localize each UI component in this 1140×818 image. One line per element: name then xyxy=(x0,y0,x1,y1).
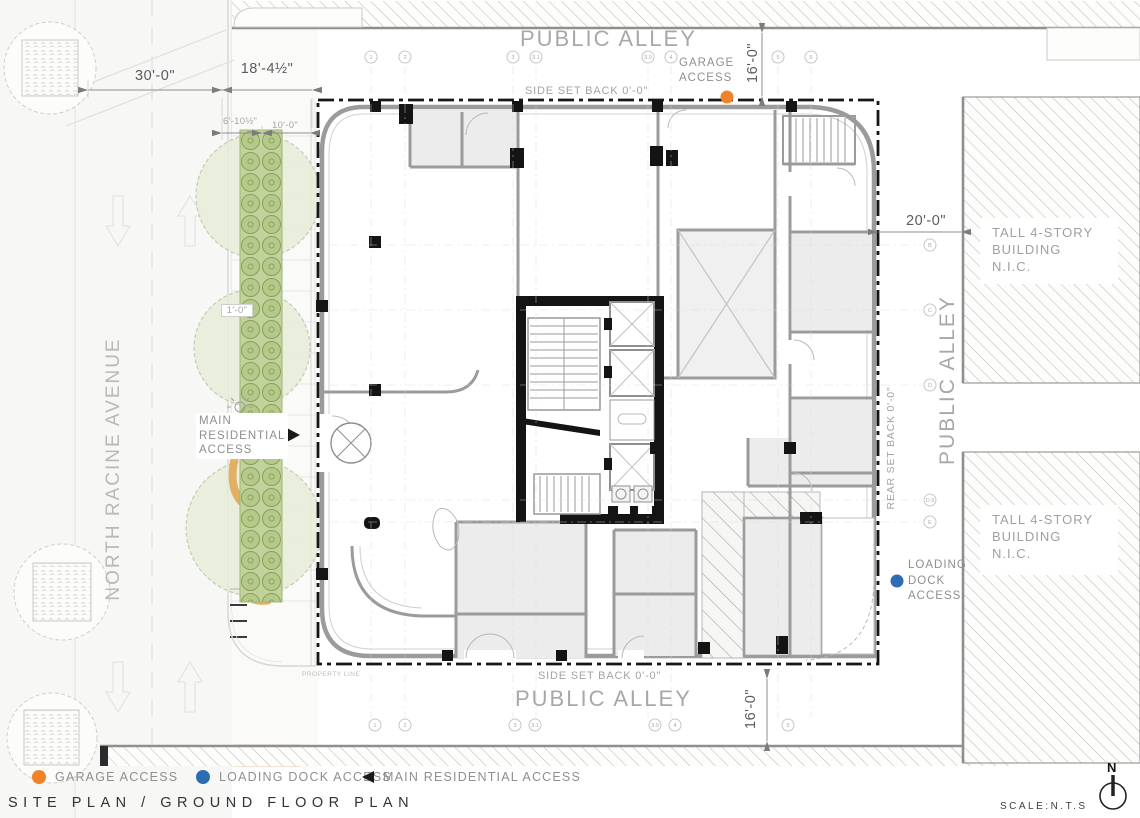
svg-text:D: D xyxy=(928,383,932,389)
north-label: N xyxy=(1107,760,1116,775)
grid-bubble: 4 xyxy=(665,51,677,63)
property-line-label: PROPERTY LINE xyxy=(302,671,360,678)
stair-lower xyxy=(534,474,600,514)
svg-text:5: 5 xyxy=(776,55,779,61)
street-name-label: NORTH RACINE AVENUE xyxy=(103,289,125,649)
grid-bubble: C xyxy=(924,304,936,316)
svg-text:3: 3 xyxy=(511,55,514,61)
svg-text:4: 4 xyxy=(669,55,672,61)
neighbor-building-1-label: TALL 4-STORY BUILDING N.I.C. xyxy=(992,224,1093,275)
elevators xyxy=(604,302,654,490)
svg-text:E: E xyxy=(928,520,932,526)
grid-bubble: E xyxy=(924,516,936,528)
garage-access-label: GARAGE ACCESS xyxy=(679,56,734,86)
grid-bubble: 1 xyxy=(365,51,377,63)
public-alley-top-label: PUBLIC ALLEY xyxy=(520,26,675,52)
svg-text:3.1: 3.1 xyxy=(531,723,539,729)
grid-bubble: 3 xyxy=(507,51,519,63)
grid-bubble: 5 xyxy=(772,51,784,63)
tree xyxy=(4,22,96,114)
grid-bubble: 2 xyxy=(399,719,411,731)
grid-bubble: D xyxy=(924,379,936,391)
svg-text:2: 2 xyxy=(403,723,406,729)
grid-bubble: 3.1 xyxy=(529,719,541,731)
svg-text:3.1: 3.1 xyxy=(532,55,540,61)
svg-text:3: 3 xyxy=(513,723,516,729)
building-footprint xyxy=(227,101,874,661)
svg-text:3.9: 3.9 xyxy=(651,723,659,729)
legend-garage-label: GARAGE ACCESS xyxy=(55,770,178,784)
loading-dock-access-label: LOADING DOCK ACCESS xyxy=(908,558,967,605)
alley-top-dimension: 16'-0" xyxy=(745,28,761,98)
grid-bubble: 1 xyxy=(369,719,381,731)
neighbor-building-2 xyxy=(963,452,1140,763)
svg-text:4: 4 xyxy=(673,723,676,729)
grid-bubble: 3.9 xyxy=(649,719,661,731)
grid-bubble: 3 xyxy=(509,719,521,731)
side-setback-bottom-label: SIDE SET BACK 0'-0" xyxy=(538,670,661,682)
alley-bottom-dimension: 16'-0" xyxy=(743,674,759,744)
neighbor-building-2-label: TALL 4-STORY BUILDING N.I.C. xyxy=(992,511,1093,562)
grid-bubble: 3.1 xyxy=(530,51,542,63)
side-setback-top-label: SIDE SET BACK 0'-0" xyxy=(525,85,648,97)
walk-width-dimension: 10'-0" xyxy=(272,120,298,131)
north-arrow-icon xyxy=(1100,775,1126,809)
grid-bubble: D.9 xyxy=(924,494,936,506)
svg-text:B: B xyxy=(928,243,932,249)
grid-bubble: 5 xyxy=(782,719,794,731)
public-alley-bottom-label: PUBLIC ALLEY xyxy=(515,686,670,712)
planting-strip xyxy=(186,130,322,602)
site-plan-sheet: 1233.13.94561233.13.945BCDD.9E PUBLIC AL… xyxy=(0,0,1140,818)
legend-garage: GARAGE ACCESS xyxy=(32,770,178,784)
rear-setback-label: REAR SET BACK 0'-0" xyxy=(885,368,897,528)
svg-text:6: 6 xyxy=(809,55,812,61)
alley-building-top xyxy=(232,1,1140,27)
legend-garage-marker xyxy=(32,770,46,784)
alley-right-dimension: 20'-0" xyxy=(886,213,966,229)
tree xyxy=(14,544,110,640)
loading-dock-dot xyxy=(891,575,904,588)
street-width-dimension: 30'-0" xyxy=(105,68,205,84)
grid-bubble: B xyxy=(924,239,936,251)
grid-bubble: 2 xyxy=(399,51,411,63)
legend-residential-label: MAIN RESIDENTIAL ACCESS xyxy=(383,770,581,784)
svg-text:2: 2 xyxy=(403,55,406,61)
grid-bubble: 4 xyxy=(669,719,681,731)
entry-vestibule xyxy=(331,423,371,463)
legend-residential-marker xyxy=(362,771,374,783)
sidewalk-width-dimension: 18'-4½" xyxy=(217,61,317,77)
svg-text:C: C xyxy=(928,308,932,314)
svg-text:3.9: 3.9 xyxy=(644,55,652,61)
residential-access-label: MAIN RESIDENTIAL ACCESS xyxy=(196,413,288,459)
svg-text:D.9: D.9 xyxy=(926,498,935,504)
alley-building-bottom xyxy=(100,746,1018,766)
svg-text:5: 5 xyxy=(786,723,789,729)
svg-text:1: 1 xyxy=(369,55,372,61)
public-alley-right-label: PUBLIC ALLEY xyxy=(936,290,960,470)
planting-offset-dimension: 6'-10½" xyxy=(223,116,257,127)
scale-note: SCALE:N.T.S xyxy=(1000,801,1088,812)
shrub-band xyxy=(240,130,282,602)
strip-width-dimension: 1'-0" xyxy=(221,304,253,317)
grid-bubble: 6 xyxy=(805,51,817,63)
legend-loading-marker xyxy=(196,770,210,784)
garage-access-dot xyxy=(721,91,734,104)
svg-text:1: 1 xyxy=(373,723,376,729)
grid-bubble: 3.9 xyxy=(642,51,654,63)
sheet-title: SITE PLAN / GROUND FLOOR PLAN xyxy=(8,795,414,811)
legend-residential: MAIN RESIDENTIAL ACCESS xyxy=(362,770,581,784)
